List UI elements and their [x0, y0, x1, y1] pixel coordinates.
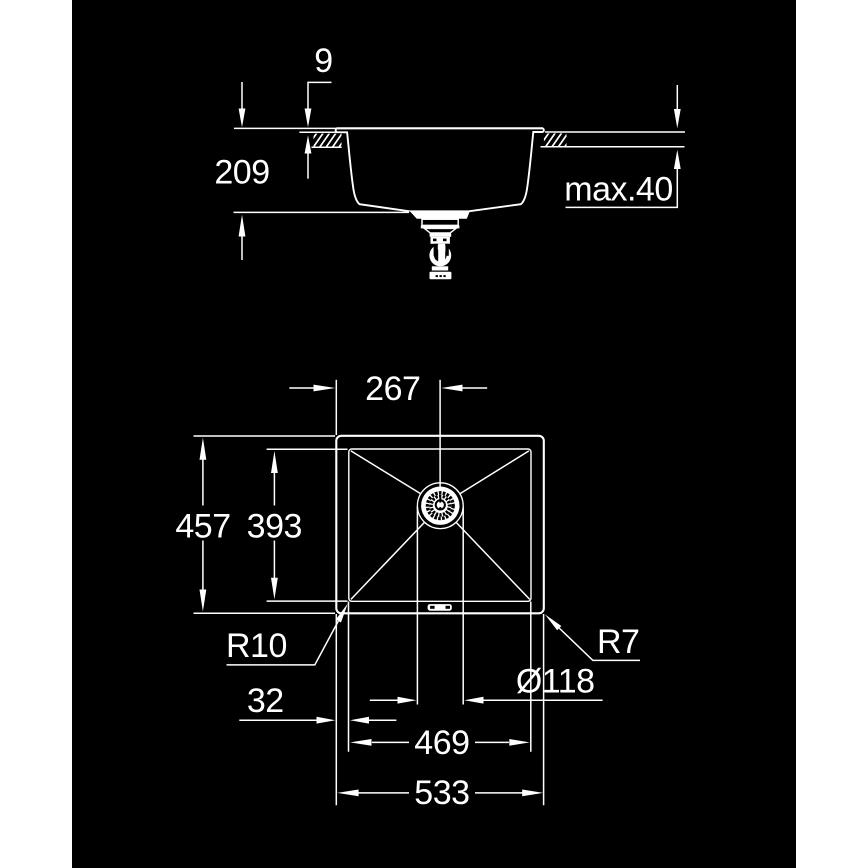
svg-text:R10: R10 — [226, 627, 287, 665]
svg-text:Ø118: Ø118 — [516, 663, 595, 701]
svg-text:max.40: max.40 — [564, 170, 673, 208]
svg-text:469: 469 — [414, 724, 469, 762]
svg-text:R7: R7 — [597, 623, 639, 661]
svg-text:533: 533 — [414, 774, 469, 812]
svg-text:393: 393 — [247, 507, 302, 545]
svg-text:209: 209 — [214, 154, 269, 192]
svg-text:457: 457 — [175, 507, 230, 545]
svg-text:32: 32 — [247, 682, 284, 720]
svg-text:267: 267 — [365, 370, 420, 408]
svg-text:9: 9 — [314, 42, 332, 80]
